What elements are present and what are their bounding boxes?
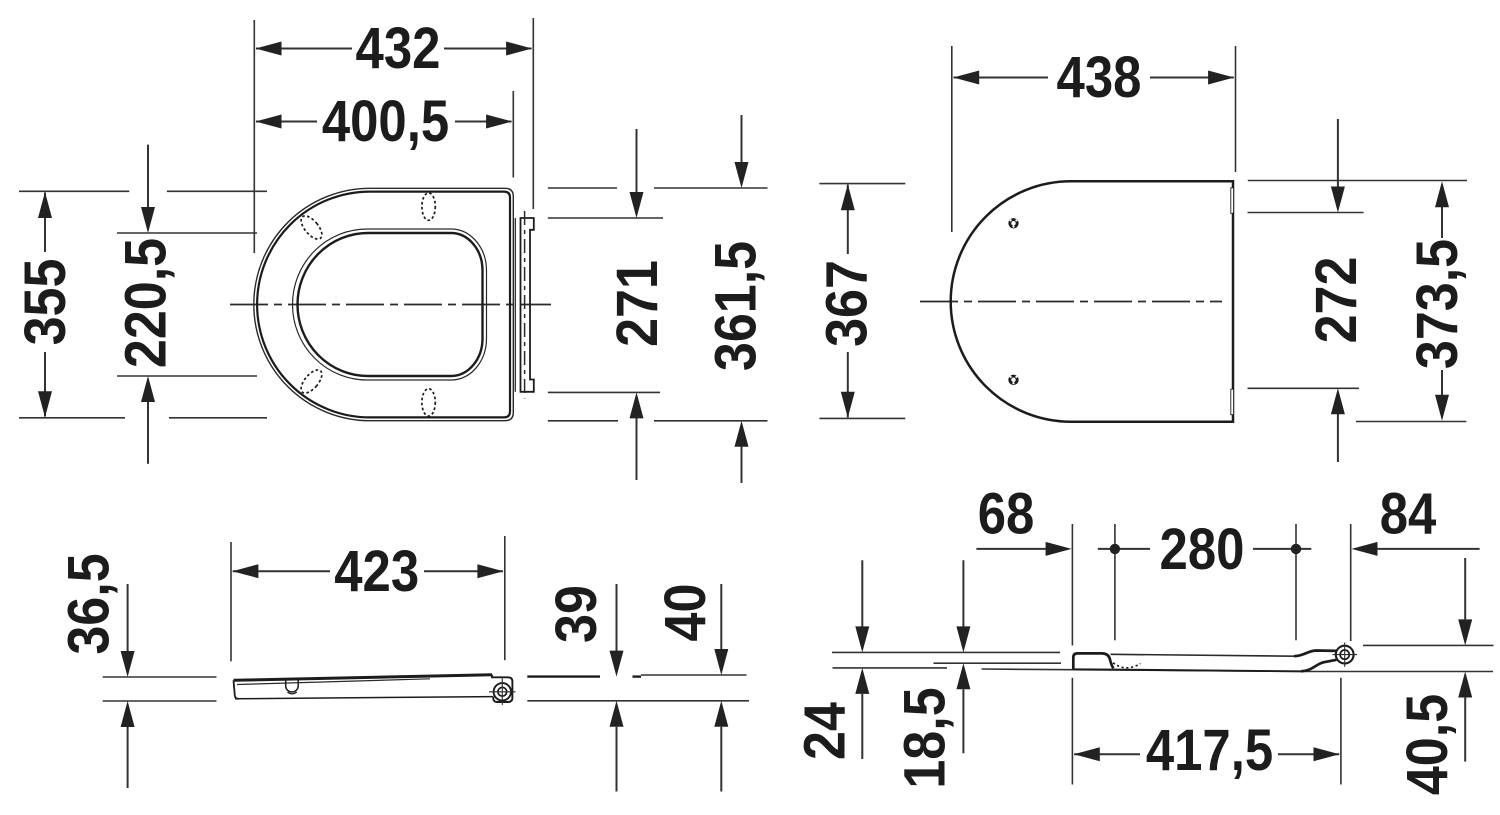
- svg-text:24: 24: [792, 702, 857, 760]
- svg-text:361,5: 361,5: [703, 241, 768, 371]
- svg-text:40,5: 40,5: [1394, 694, 1459, 795]
- svg-text:355: 355: [12, 259, 77, 346]
- svg-text:271: 271: [604, 260, 669, 347]
- svg-text:18,5: 18,5: [892, 687, 957, 788]
- svg-text:84: 84: [1380, 480, 1437, 546]
- svg-text:36,5: 36,5: [56, 553, 121, 654]
- svg-text:423: 423: [334, 538, 419, 604]
- svg-text:373,5: 373,5: [1404, 239, 1469, 369]
- svg-text:39: 39: [543, 585, 608, 643]
- svg-text:400,5: 400,5: [322, 88, 449, 154]
- svg-text:280: 280: [1160, 516, 1245, 582]
- svg-text:438: 438: [1057, 44, 1142, 110]
- svg-text:432: 432: [356, 15, 441, 81]
- svg-text:68: 68: [978, 480, 1035, 546]
- svg-text:220,5: 220,5: [113, 238, 178, 368]
- svg-text:367: 367: [814, 260, 879, 347]
- svg-text:40: 40: [652, 584, 717, 642]
- svg-text:272: 272: [1303, 257, 1368, 344]
- svg-text:417,5: 417,5: [1146, 717, 1273, 783]
